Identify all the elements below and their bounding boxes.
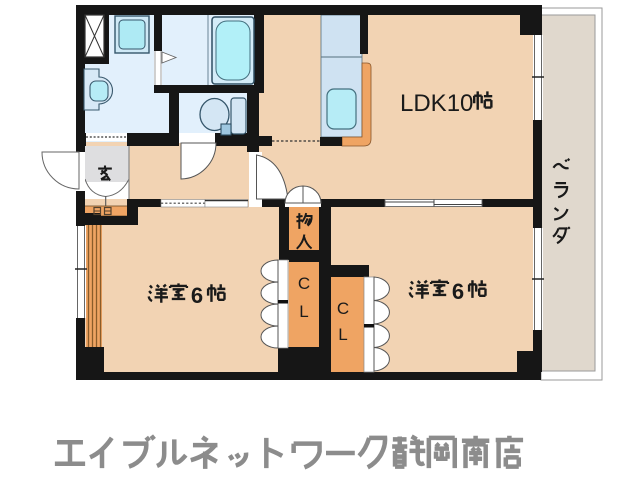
svg-text:L: L	[299, 302, 308, 321]
svg-text:6: 6	[452, 279, 464, 304]
svg-text:6: 6	[191, 283, 203, 308]
svg-text:C: C	[298, 274, 310, 293]
svg-text:C: C	[337, 299, 349, 318]
svg-text:LDK10: LDK10	[400, 90, 473, 117]
svg-text:L: L	[338, 325, 347, 344]
